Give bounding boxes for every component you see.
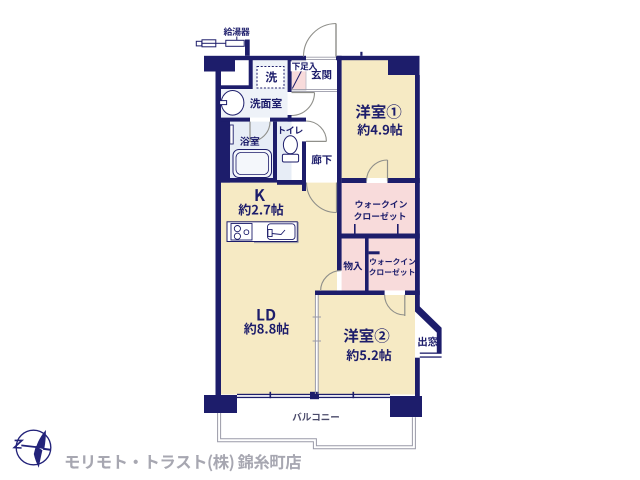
svg-text:バルコニー: バルコニー <box>292 410 340 424</box>
svg-text:約5.2帖: 約5.2帖 <box>346 345 392 364</box>
svg-text:トイレ: トイレ <box>277 124 303 137</box>
svg-text:クローゼット: クローゼット <box>354 210 407 223</box>
svg-text:洗: 洗 <box>265 69 277 86</box>
svg-text:廊下: 廊下 <box>311 153 332 168</box>
svg-text:洋室②: 洋室② <box>343 325 390 347</box>
svg-text:モリモト・トラスト(株) 錦糸町店: モリモト・トラスト(株) 錦糸町店 <box>64 449 301 473</box>
svg-text:約8.8帖: 約8.8帖 <box>244 319 290 338</box>
svg-text:給湯器: 給湯器 <box>223 25 249 38</box>
svg-text:出窓: 出窓 <box>417 335 438 350</box>
svg-text:洗面室: 洗面室 <box>250 96 283 112</box>
svg-text:クローゼット: クローゼット <box>369 267 416 278</box>
svg-text:浴室: 浴室 <box>240 133 260 148</box>
svg-text:玄関: 玄関 <box>311 68 332 83</box>
svg-text:物入: 物入 <box>343 259 362 273</box>
svg-text:ウォークイン: ウォークイン <box>369 257 416 268</box>
svg-text:約2.7帖: 約2.7帖 <box>238 200 284 219</box>
svg-text:約4.9帖: 約4.9帖 <box>357 120 403 139</box>
